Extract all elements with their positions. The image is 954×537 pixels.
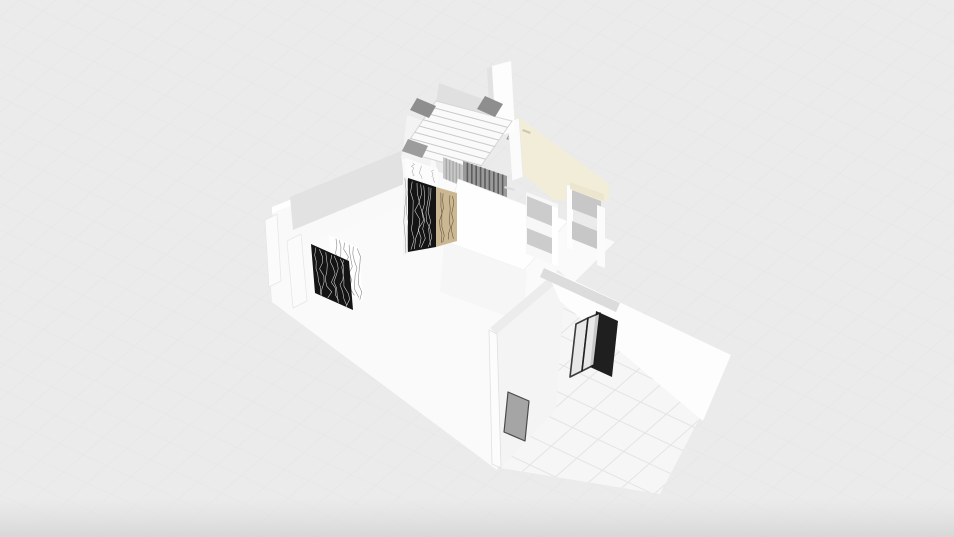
center-wardrobe-dark-interior [408,178,436,252]
gray-door-panel [504,392,529,441]
accent-wall-cream [512,115,609,201]
bottom-fade [0,498,954,537]
floorplan-3d-viewport[interactable] [0,0,954,537]
floorplan-3d-scene [0,0,954,537]
shelf-unit-b-post [597,205,605,268]
shelf-unit-a-post [552,206,558,266]
center-wardrobe-wood-interior [436,187,457,247]
